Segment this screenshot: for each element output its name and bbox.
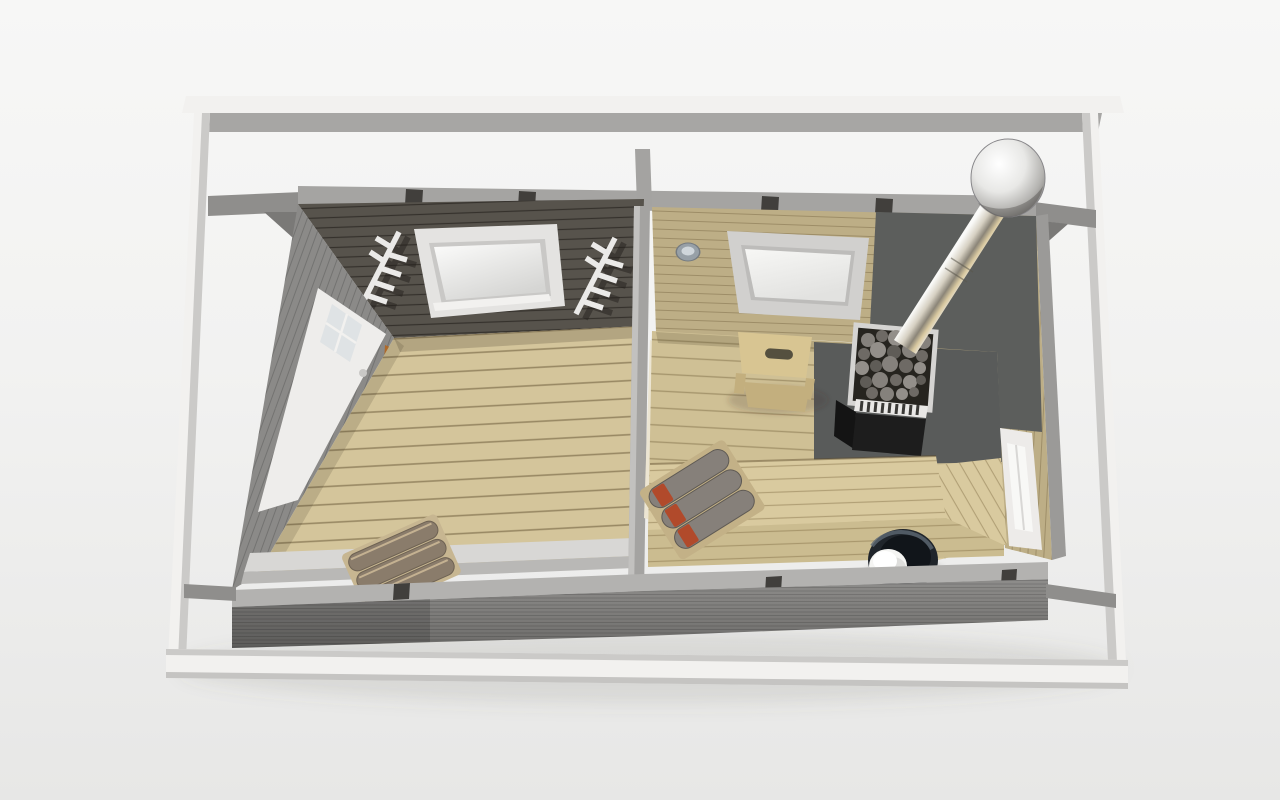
stool-handle-hole bbox=[765, 348, 794, 360]
notch bbox=[393, 583, 410, 600]
render-canvas bbox=[0, 0, 1280, 800]
dressing-room bbox=[232, 199, 644, 616]
front-wall-corner-shadow bbox=[232, 599, 430, 648]
light-lens bbox=[682, 247, 695, 256]
sauna-skylight bbox=[727, 231, 869, 320]
stool-leg bbox=[734, 373, 746, 394]
frame-top-fascia bbox=[182, 96, 1124, 113]
frame-top-underbeam bbox=[204, 113, 1102, 132]
stool-step bbox=[744, 382, 810, 412]
skylight-glass bbox=[745, 249, 851, 302]
stove-body bbox=[852, 413, 926, 456]
sauna-cabin-render bbox=[0, 0, 1280, 800]
dressing-room-skylight bbox=[414, 224, 565, 318]
skylight-glass bbox=[434, 243, 546, 300]
recessed-light bbox=[676, 243, 701, 262]
door-handle bbox=[359, 369, 367, 377]
purlin-bottom-left bbox=[184, 584, 236, 601]
partition-wall-fin bbox=[635, 149, 652, 206]
